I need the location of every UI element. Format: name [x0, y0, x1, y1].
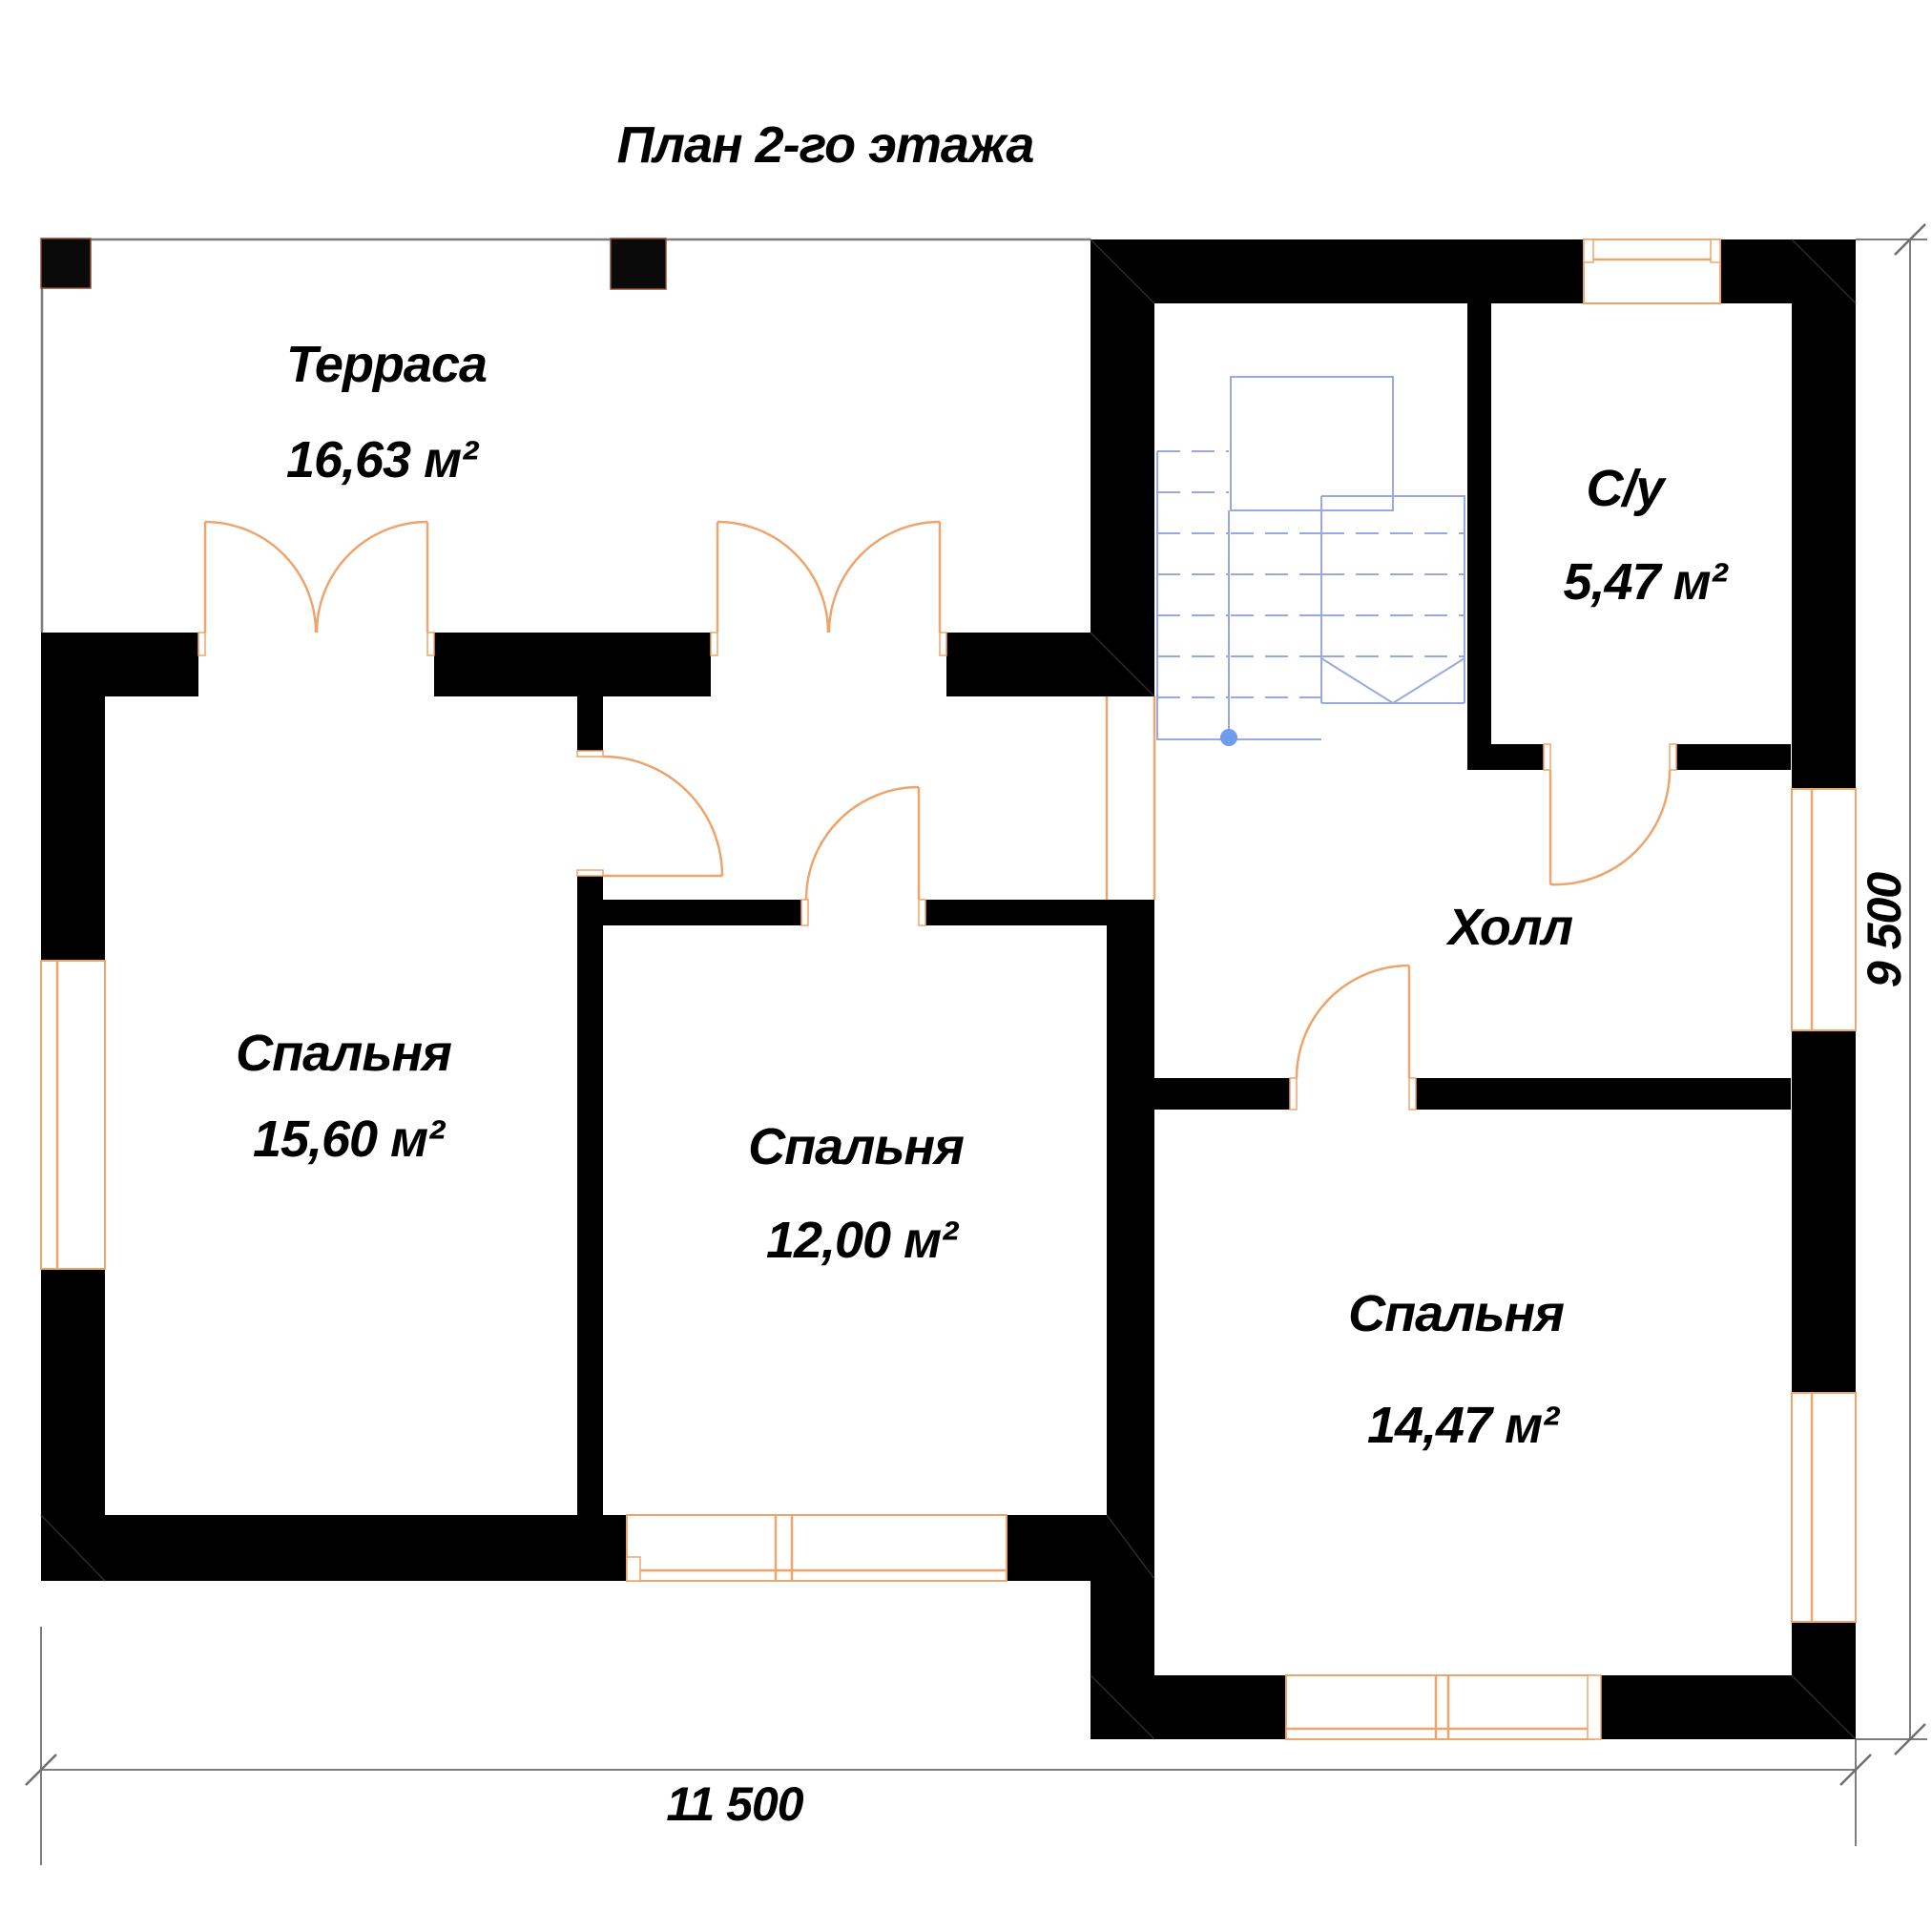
room-label-terrace: Терраса: [286, 336, 487, 393]
room-label-bathroom: С/у: [1586, 460, 1667, 517]
floor-plan-drawing: 11 500 9 500 План 2-го этажа Терраса 16,…: [0, 0, 1932, 1931]
door-bedroom-left: [577, 751, 722, 876]
stairs-left-boundary: [1157, 451, 1321, 739]
wall-bedroom-divider-upper: [577, 696, 603, 751]
stairs-treads-left: [1157, 451, 1229, 697]
room-area-bedroom-left: 15,60 м²: [253, 1111, 447, 1168]
door-bathroom: [1544, 744, 1676, 884]
stairs-treads-right: [1321, 533, 1465, 656]
stairs-railing: [1231, 377, 1393, 510]
window-top-bathroom: [1584, 239, 1720, 303]
dimension-bottom: 11 500: [26, 1627, 1871, 1865]
french-door-terrace-right: [711, 522, 946, 655]
doors: [198, 522, 1676, 1110]
page-title: План 2-го этажа: [617, 116, 1034, 174]
wall-terrace-bottom-a: [41, 633, 198, 696]
wall-right-upper: [1792, 239, 1856, 789]
wall-left-upper: [41, 696, 105, 961]
wall-terrace-bottom-b: [434, 633, 711, 696]
dimension-width-label: 11 500: [666, 1777, 803, 1831]
room-area-terrace: 16,63 м²: [286, 431, 480, 488]
window-right-bedroom: [1792, 1393, 1856, 1622]
window-left-bedroom: [41, 961, 105, 1269]
wall-bedroom-right-top-a: [1154, 1078, 1290, 1110]
room-area-bathroom: 5,47 м²: [1563, 553, 1729, 611]
window-bottom-bedroom-right: [1286, 1675, 1601, 1739]
room-label-bedroom-right: Спальня: [1348, 1285, 1564, 1342]
wall-hall-vertical: [1107, 900, 1154, 1579]
wall-bathroom-bottom-b: [1676, 744, 1791, 770]
wall-bathroom-left: [1467, 303, 1491, 770]
french-door-terrace-left: [198, 522, 434, 655]
wall-bottom-left-a: [41, 1515, 627, 1581]
terrace-outline: [41, 239, 1091, 633]
window-right-hall: [1792, 789, 1856, 1030]
terrace-column-right: [611, 239, 666, 289]
room-label-bedroom-left: Спальня: [236, 1025, 451, 1082]
door-bedroom-right: [1290, 965, 1416, 1110]
stairs-arrow: [1321, 658, 1465, 703]
window-bottom-bedroom-middle: [627, 1515, 1007, 1581]
wall-top-left-segment: [1091, 239, 1584, 303]
stairs-treads-middle: [1231, 533, 1321, 697]
wall-bedroom-middle-top-b: [925, 900, 1107, 925]
wall-terrace-bottom-c: [946, 633, 1091, 696]
wall-bedroom-right-top-b: [1415, 1078, 1791, 1110]
stairs-start-dot: [1220, 729, 1237, 746]
wall-bedroom-middle-top-a: [603, 900, 801, 925]
room-area-bedroom-middle: 12,00 м²: [766, 1212, 960, 1269]
wall-right-middle: [1792, 1030, 1856, 1393]
stairs: [1157, 377, 1465, 746]
room-label-bedroom-middle: Спальня: [748, 1118, 964, 1175]
terrace-column-left: [41, 239, 91, 288]
wall-bottom-right-b: [1601, 1675, 1856, 1739]
dimension-right: 9 500: [1856, 224, 1927, 1755]
wall-bottom-left-b: [1007, 1515, 1154, 1581]
wall-stairwell-left: [1091, 303, 1154, 696]
wall-bathroom-bottom-a: [1467, 744, 1544, 770]
wall-bedroom-divider-lower: [577, 876, 603, 1515]
wall-bottom-right-a: [1091, 1675, 1286, 1739]
room-label-hall: Холл: [1445, 899, 1573, 956]
floor-plan-page: 11 500 9 500 План 2-го этажа Терраса 16,…: [0, 0, 1932, 1931]
room-area-bedroom-right: 14,47 м²: [1367, 1397, 1561, 1454]
opening-hall-passage: [1107, 696, 1154, 900]
dimension-height-label: 9 500: [1858, 872, 1911, 987]
door-bedroom-middle: [801, 787, 925, 925]
